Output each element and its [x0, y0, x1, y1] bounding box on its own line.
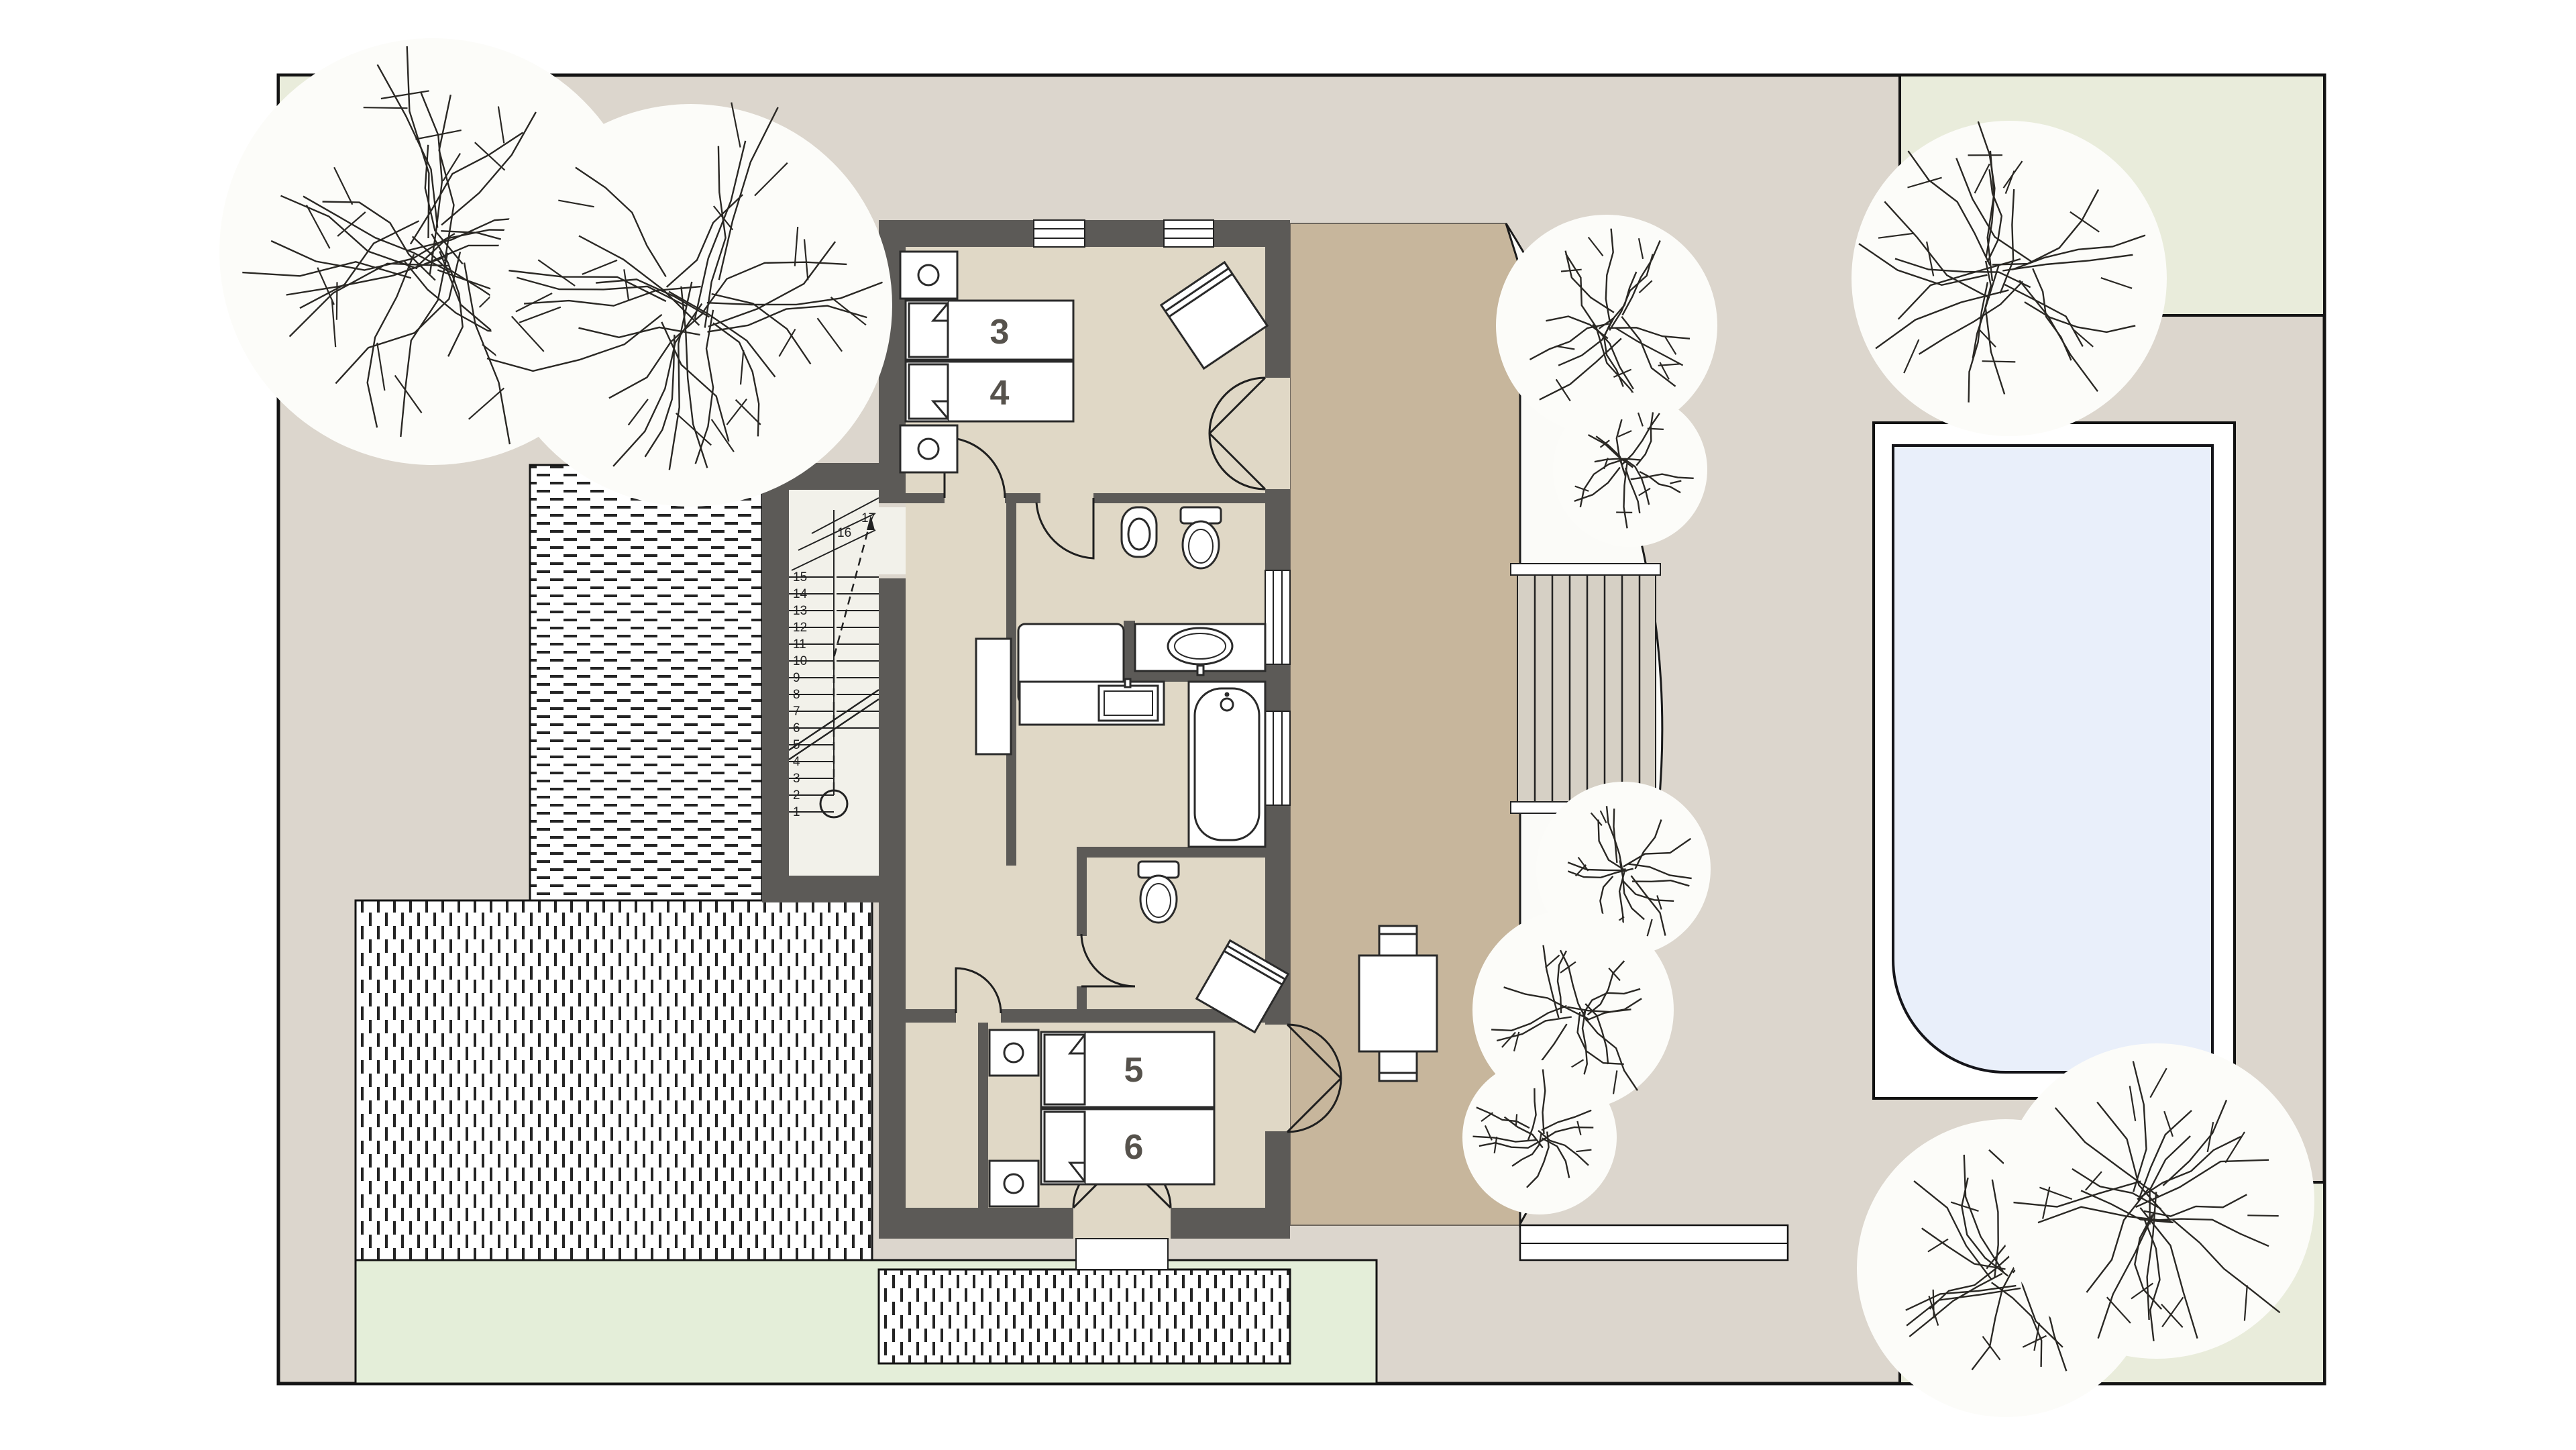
svg-text:16: 16 — [837, 526, 851, 540]
door-opening-bedroom-b-terrace — [1265, 1025, 1290, 1131]
bidet — [1122, 507, 1157, 557]
chair — [1379, 926, 1417, 955]
tap-icon — [1197, 666, 1203, 675]
chair — [1379, 1051, 1417, 1081]
tree — [1999, 1043, 2314, 1359]
pool-water — [1893, 446, 2212, 1072]
svg-text:15: 15 — [793, 570, 807, 584]
door-opening-south — [1073, 1208, 1171, 1239]
nightstand — [989, 1030, 1038, 1076]
svg-text:11: 11 — [793, 637, 806, 652]
nightstand — [900, 425, 957, 472]
bed-6-label: 6 — [1124, 1128, 1144, 1167]
bed-4-label: 4 — [990, 374, 1010, 413]
nightstand — [989, 1161, 1038, 1206]
table — [1359, 955, 1437, 1051]
bed-5-label: 5 — [1124, 1051, 1144, 1090]
svg-text:17: 17 — [861, 511, 875, 525]
door-opening-bedroom-a-terrace — [1265, 378, 1290, 489]
shrub — [1553, 393, 1707, 547]
window-east-1 — [1265, 570, 1290, 664]
svg-text:5: 5 — [793, 738, 800, 752]
window-north-2 — [1164, 220, 1214, 247]
swimming-pool — [1874, 423, 2235, 1098]
svg-text:3: 3 — [793, 772, 800, 786]
garden-steps — [1511, 564, 1660, 813]
site-plan-drawing: 1 2 3 4 5 6 7 8 9 10 11 12 13 14 15 16 1… — [0, 0, 2576, 1450]
svg-text:1: 1 — [793, 805, 800, 819]
svg-text:13: 13 — [793, 604, 807, 618]
retaining-wall — [1520, 1225, 1788, 1260]
roof-hatch-south — [879, 1270, 1290, 1363]
svg-text:7: 7 — [793, 705, 800, 719]
south-door-threshold — [1076, 1239, 1168, 1270]
svg-text:4: 4 — [793, 755, 800, 769]
svg-text:6: 6 — [793, 721, 800, 735]
window-north-1 — [1034, 220, 1085, 247]
wardrobe — [976, 639, 1011, 754]
bathtub — [1189, 682, 1265, 847]
roof-hatch-upper-left — [530, 465, 762, 900]
svg-text:2: 2 — [793, 788, 800, 802]
svg-text:9: 9 — [793, 671, 800, 685]
floor-plan-page: 1 2 3 4 5 6 7 8 9 10 11 12 13 14 15 16 1… — [0, 0, 2576, 1450]
svg-text:14: 14 — [793, 587, 808, 601]
roof-hatch-lower-left — [356, 900, 872, 1260]
tap-icon — [1125, 679, 1130, 687]
nightstand — [900, 252, 957, 299]
stair-landing-opening — [879, 507, 906, 574]
shrub — [1462, 1060, 1617, 1214]
svg-text:8: 8 — [793, 688, 800, 702]
bed-3-label: 3 — [990, 313, 1010, 352]
toilet — [1181, 507, 1221, 568]
tree — [1851, 121, 2167, 436]
svg-text:10: 10 — [793, 654, 807, 668]
window-east-2 — [1265, 711, 1290, 805]
wc-toilet — [1138, 862, 1179, 923]
svg-text:12: 12 — [793, 621, 807, 635]
